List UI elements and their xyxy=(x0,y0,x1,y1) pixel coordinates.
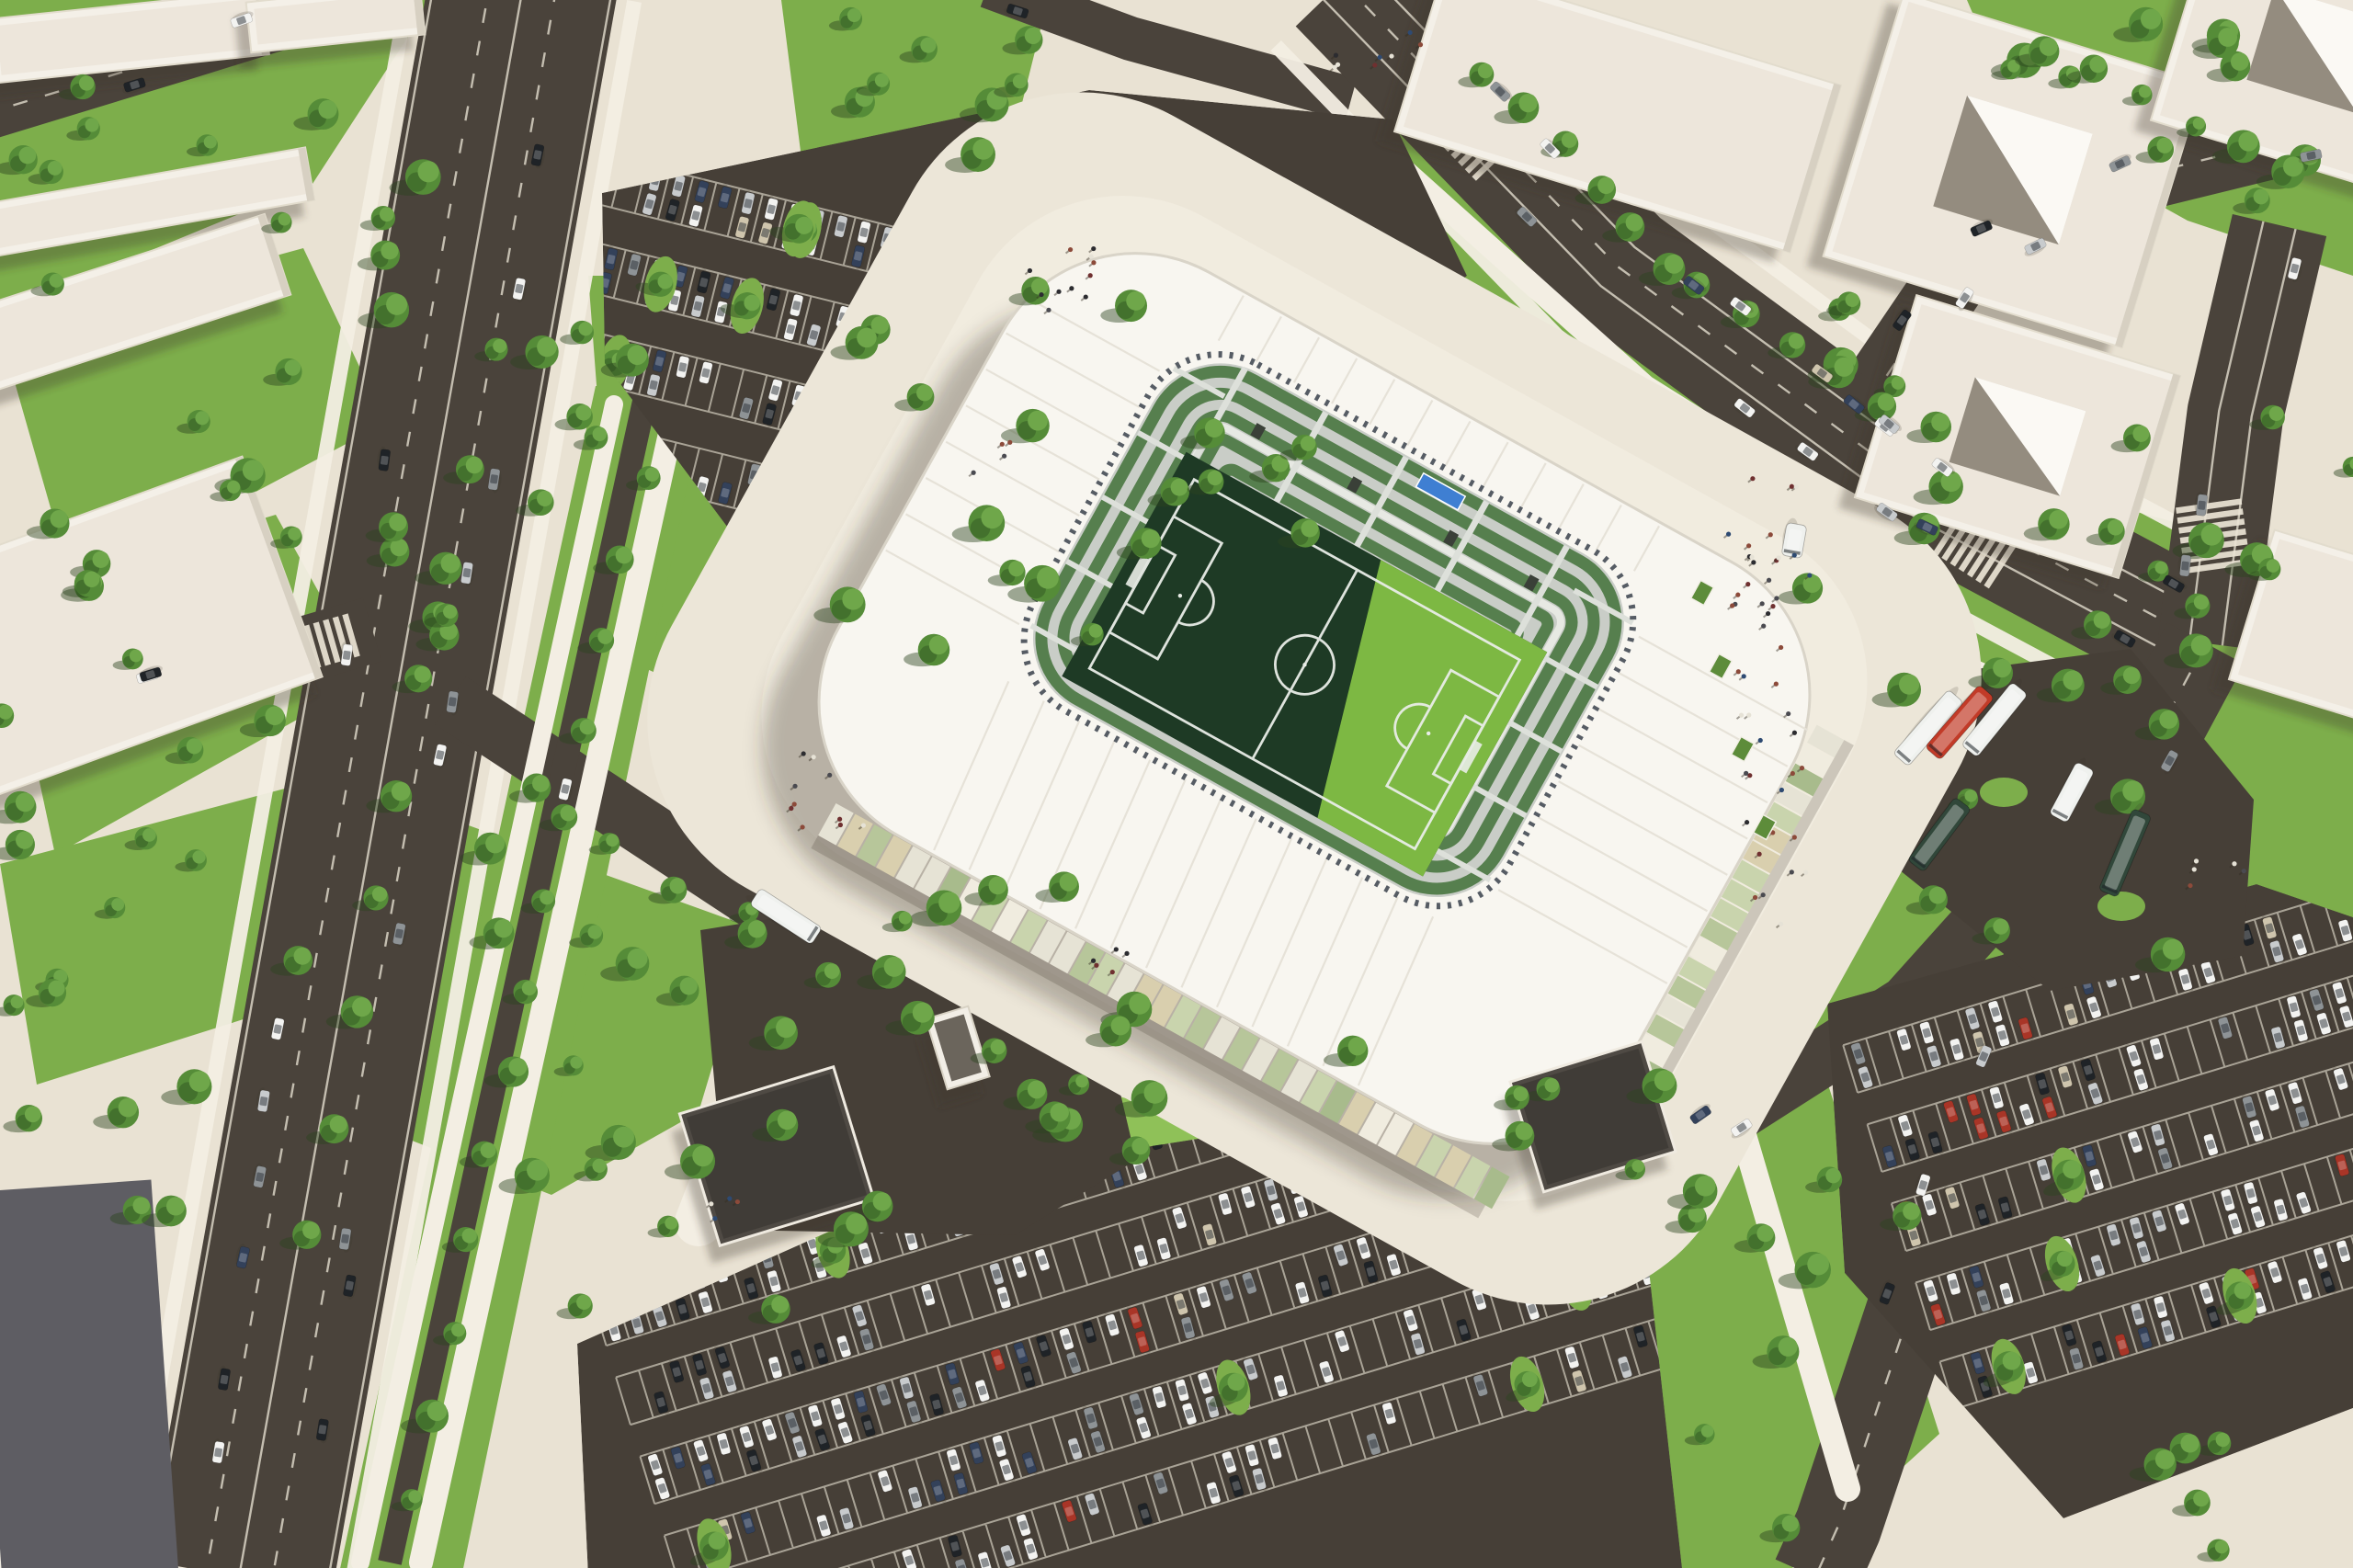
person-dot xyxy=(1114,947,1119,951)
tree-crown-light xyxy=(119,1098,138,1118)
person-dot xyxy=(1790,869,1794,874)
tree-crown-light xyxy=(84,572,99,587)
tree-crown-light xyxy=(776,1017,796,1038)
person-dot xyxy=(1746,543,1751,548)
tree-crown-light xyxy=(485,834,505,853)
tree-crown-light xyxy=(1597,177,1614,194)
tree-crown-light xyxy=(1803,574,1822,593)
person-dot xyxy=(1039,292,1043,297)
tree-crown-light xyxy=(616,547,632,563)
depot-island xyxy=(1980,778,2028,807)
person-dot xyxy=(1730,603,1734,608)
tree-crown-light xyxy=(1695,1176,1716,1197)
tree-crown-light xyxy=(1899,675,1919,695)
tree-crown-light xyxy=(2122,780,2143,801)
tree-crown-light xyxy=(50,274,63,288)
tree-crown-light xyxy=(2094,612,2110,629)
tree-crown-light xyxy=(873,1192,892,1210)
person-dot xyxy=(2188,883,2192,888)
car-cabin xyxy=(341,1233,349,1244)
person-dot xyxy=(1768,532,1773,537)
tree-crown-light xyxy=(330,1116,347,1133)
person-dot xyxy=(1758,738,1763,743)
person-dot xyxy=(1776,555,1780,560)
person-dot xyxy=(709,1201,713,1206)
person-dot xyxy=(1792,731,1797,735)
person-dot xyxy=(1792,552,1797,557)
tree-crown-light xyxy=(991,1040,1006,1054)
tree-crown-light xyxy=(627,345,647,365)
tree-crown-light xyxy=(1089,624,1103,638)
person-dot xyxy=(801,751,806,756)
car-cabin xyxy=(318,1425,326,1435)
tree-crown-light xyxy=(1518,94,1537,112)
tree-crown-light xyxy=(1701,1425,1714,1437)
person-dot xyxy=(1750,476,1755,481)
tree-crown-light xyxy=(1301,436,1316,451)
tree-crown-light xyxy=(1807,1254,1829,1276)
person-dot xyxy=(1084,294,1088,299)
tree-crown-light xyxy=(1931,413,1949,431)
tree-crown-light xyxy=(1348,1037,1367,1055)
tree-crown-light xyxy=(2156,138,2172,153)
tree-crown-light xyxy=(166,1197,185,1215)
tree-crown-light xyxy=(1789,334,1804,349)
person-dot xyxy=(1056,290,1061,294)
tree-crown-light xyxy=(133,1197,151,1214)
tree-crown-light xyxy=(243,460,264,481)
tree-crown-light xyxy=(2191,635,2211,655)
tree-crown-light xyxy=(2269,406,2284,421)
tree-crown-light xyxy=(1037,567,1059,589)
tree-crown-light xyxy=(16,832,33,849)
person-dot xyxy=(838,823,843,827)
tree-crown-light xyxy=(2132,426,2149,442)
tree-crown-light xyxy=(1993,919,2008,935)
tree-crown-light xyxy=(111,898,124,911)
tree-crown-light xyxy=(2194,595,2209,609)
tree-crown-light xyxy=(606,834,619,846)
tree-crown-light xyxy=(189,1071,210,1092)
tree-crown-light xyxy=(1779,1337,1798,1357)
person-dot xyxy=(2192,867,2197,871)
tree-crown-light xyxy=(2193,118,2205,130)
person-dot xyxy=(1088,273,1093,278)
person-dot xyxy=(2194,858,2199,863)
tree-crown-light xyxy=(748,920,766,937)
tree-crown-light xyxy=(588,925,602,938)
person-dot xyxy=(792,784,797,789)
person-dot xyxy=(1761,624,1766,629)
dark-roof-left-building-roof xyxy=(0,1180,179,1568)
person-dot xyxy=(827,773,832,778)
tree-crown-light xyxy=(352,997,371,1017)
tree-crown-light xyxy=(1929,887,1947,904)
tree-crown-light xyxy=(204,135,217,148)
tree-crown-light xyxy=(1031,278,1048,295)
tree-crown-light xyxy=(441,553,460,573)
tree-crown-light xyxy=(1028,411,1048,431)
tree-crown-light xyxy=(527,1160,548,1181)
tree-crown-light xyxy=(1126,291,1145,311)
tree-crown-light xyxy=(597,629,612,643)
car-cabin xyxy=(343,651,351,660)
person-dot xyxy=(837,817,842,822)
tree-crown-light xyxy=(392,782,411,801)
tree-crown-light xyxy=(1846,293,1859,307)
tree-crown-light xyxy=(451,1323,465,1336)
tree-crown-light xyxy=(130,650,142,663)
person-dot xyxy=(1372,62,1377,67)
person-dot xyxy=(1745,820,1749,824)
tree-crown-light xyxy=(1993,659,2011,677)
tree-crown-light xyxy=(1545,1078,1559,1092)
tree-crown-light xyxy=(2063,670,2082,689)
person-dot xyxy=(2232,861,2236,866)
tree-crown-light xyxy=(778,1111,797,1131)
tree-crown-light xyxy=(2254,189,2269,205)
tree-crown-light xyxy=(85,118,98,131)
car-cabin xyxy=(2181,561,2189,570)
tree-crown-light xyxy=(899,912,912,925)
tree-crown-light xyxy=(2139,85,2151,97)
person-dot xyxy=(1745,582,1750,586)
person-dot xyxy=(1735,593,1740,597)
tree-crown-light xyxy=(2159,710,2177,729)
tree-crown-light xyxy=(1514,1086,1529,1101)
person-dot xyxy=(1803,870,1808,875)
person-dot xyxy=(1000,442,1005,447)
person-dot xyxy=(1378,55,1382,60)
tree-crown-light xyxy=(824,963,840,979)
person-dot xyxy=(1334,53,1338,58)
scene-svg: Aerial architectural rendering of a whit… xyxy=(0,0,2353,1568)
car-cabin xyxy=(259,1096,267,1107)
tree-crown-light xyxy=(48,980,64,996)
tree-crown-light xyxy=(989,877,1007,895)
tree-crown-light xyxy=(466,457,483,473)
tree-crown-light xyxy=(1171,479,1188,496)
person-dot xyxy=(1757,852,1762,857)
tree-crown-light xyxy=(288,528,301,540)
tree-crown-light xyxy=(380,207,394,222)
tree-crown-light xyxy=(481,1142,496,1158)
car-cabin xyxy=(2198,501,2206,510)
tree-crown-light xyxy=(1631,1160,1643,1172)
car-cabin xyxy=(449,697,457,707)
tree-crown-light xyxy=(576,1295,591,1310)
tree-crown-light xyxy=(372,887,387,902)
tree-crown-light xyxy=(1478,63,1493,78)
tree-crown-light xyxy=(537,337,557,358)
tree-crown-light xyxy=(847,8,861,22)
person-dot xyxy=(1779,788,1784,792)
tree-crown-light xyxy=(1626,214,1643,232)
person-dot xyxy=(712,1216,717,1221)
tree-crown-light xyxy=(929,635,949,654)
person-dot xyxy=(1408,30,1413,35)
person-dot xyxy=(1002,454,1006,459)
person-dot xyxy=(1790,771,1795,776)
tree-crown-light xyxy=(1208,471,1222,485)
dark-roof-left-building xyxy=(0,1180,180,1568)
car-cabin xyxy=(220,1375,228,1385)
tree-crown-light xyxy=(884,957,904,977)
person-dot xyxy=(800,824,804,829)
depot-island xyxy=(2097,892,2145,921)
tree-crown-light xyxy=(2141,9,2161,29)
tree-crown-light xyxy=(494,919,513,937)
tree-crown-light xyxy=(318,100,336,119)
person-dot xyxy=(1749,554,1754,559)
tree-crown-light xyxy=(265,706,284,725)
person-dot xyxy=(1389,53,1393,58)
person-dot xyxy=(1786,711,1790,716)
tree-crown-light xyxy=(1008,561,1024,576)
person-dot xyxy=(1028,268,1032,273)
person-dot xyxy=(972,471,976,475)
tree-crown-light xyxy=(1825,1168,1841,1184)
person-dot xyxy=(1124,951,1129,956)
person-dot xyxy=(1736,669,1741,674)
tree-crown-light xyxy=(11,995,24,1008)
tree-crown-light xyxy=(2201,524,2222,545)
tree-crown-light xyxy=(2108,519,2123,535)
car-cabin xyxy=(214,1448,222,1458)
tree-crown-light xyxy=(1835,358,1854,377)
person-dot xyxy=(1091,959,1096,963)
tree-crown-light xyxy=(93,551,109,568)
person-dot xyxy=(1770,604,1775,608)
tree-crown-light xyxy=(570,1056,582,1068)
tree-crown-light xyxy=(2155,562,2168,574)
tree-crown-light xyxy=(1075,1074,1088,1087)
tree-crown-light xyxy=(916,385,933,402)
tree-crown-light xyxy=(408,1490,421,1503)
tree-crown-light xyxy=(2231,52,2249,71)
tree-crown-light xyxy=(846,1213,867,1234)
person-dot xyxy=(861,823,866,827)
tree-crown-light xyxy=(645,467,660,482)
tree-crown-light xyxy=(913,1003,933,1023)
person-dot xyxy=(2242,869,2246,873)
tree-crown-light xyxy=(1131,1138,1148,1154)
tree-crown-light xyxy=(2267,559,2280,573)
person-dot xyxy=(792,801,797,806)
person-dot xyxy=(1794,484,1799,489)
tree-crown-light xyxy=(670,878,686,893)
person-dot xyxy=(1046,308,1051,312)
tree-crown-light xyxy=(48,161,63,176)
tree-crown-light xyxy=(1892,377,1904,390)
tree-crown-light xyxy=(25,1106,41,1122)
person-dot xyxy=(1069,286,1074,290)
person-dot xyxy=(1779,645,1783,650)
tree-crown-light xyxy=(578,322,592,335)
tree-crown-light xyxy=(1111,1017,1131,1036)
tree-crown-light xyxy=(2089,56,2106,73)
tree-crown-light xyxy=(1903,1203,1920,1221)
tree-crown-light xyxy=(192,850,205,863)
tree-crown-light xyxy=(2216,1433,2230,1447)
tree-crown-light xyxy=(665,1217,677,1230)
tree-crown-light xyxy=(1782,1516,1799,1532)
tree-crown-light xyxy=(1013,74,1027,88)
person-dot xyxy=(1418,42,1423,47)
aerial-render: Aerial architectural rendering of a whit… xyxy=(0,0,2353,1568)
tree-crown-light xyxy=(1301,520,1318,538)
tree-crown-light xyxy=(1654,1070,1676,1091)
tree-crown-light xyxy=(1665,255,1684,274)
person-dot xyxy=(1774,596,1779,600)
tree-crown-light xyxy=(427,1401,448,1421)
car-cabin xyxy=(381,456,389,465)
tree-crown-light xyxy=(2193,1491,2209,1506)
tree-crown-light xyxy=(493,339,506,353)
tree-crown-light xyxy=(1562,132,1577,148)
person-dot xyxy=(1007,440,1012,445)
tree-crown-light xyxy=(1756,1225,1774,1243)
person-dot xyxy=(1333,65,1337,70)
tree-crown-light xyxy=(771,1296,789,1313)
person-dot xyxy=(1753,895,1757,900)
person-dot xyxy=(1091,260,1096,265)
tree-crown-light xyxy=(1965,790,1978,802)
tree-crown-light xyxy=(302,1221,320,1239)
tree-crown-light xyxy=(2049,510,2068,529)
tree-crown-light xyxy=(1144,1082,1166,1104)
tree-crown-light xyxy=(386,294,407,315)
tree-crown-light xyxy=(2163,939,2183,960)
tree-crown-light xyxy=(381,242,398,259)
car-cabin xyxy=(490,474,498,484)
tree-crown-light xyxy=(51,510,68,528)
person-dot xyxy=(812,755,816,759)
person-dot xyxy=(1760,601,1765,606)
tree-crown-light xyxy=(2238,131,2258,152)
tree-crown-light xyxy=(2040,38,2058,56)
person-dot xyxy=(1726,532,1731,537)
person-dot xyxy=(1746,712,1751,717)
tree-crown-light xyxy=(508,1058,527,1076)
tree-crown-light xyxy=(79,75,94,90)
tree-crown-light xyxy=(462,1228,477,1243)
tree-crown-light xyxy=(18,147,36,165)
tree-crown-light xyxy=(593,427,607,441)
tree-crown-light xyxy=(415,666,431,683)
tree-crown-light xyxy=(1516,1122,1533,1140)
person-dot xyxy=(1766,611,1770,616)
tree-crown-light xyxy=(1025,28,1041,44)
tree-crown-light xyxy=(972,139,994,160)
tree-crown-light xyxy=(142,828,156,842)
tree-crown-light xyxy=(561,805,576,821)
person-dot xyxy=(1767,578,1771,583)
tree-crown-light xyxy=(875,74,889,87)
tree-crown-light xyxy=(285,359,301,376)
tree-crown-light xyxy=(540,891,554,905)
tree-crown-light xyxy=(2155,1449,2175,1469)
person-dot xyxy=(789,806,793,811)
tree-crown-light xyxy=(389,514,406,531)
person-dot xyxy=(1761,892,1766,897)
tree-crown-light xyxy=(1060,873,1078,892)
tree-crown-light xyxy=(575,404,591,420)
tree-crown-light xyxy=(2218,28,2237,47)
person-dot xyxy=(1068,247,1073,252)
tree-crown-light xyxy=(1129,994,1150,1015)
tree-crown-light xyxy=(628,949,648,969)
tree-crown-light xyxy=(1028,1080,1046,1098)
person-dot xyxy=(735,1199,740,1204)
tree-crown-light xyxy=(2215,1540,2229,1554)
tree-crown-light xyxy=(613,1127,634,1148)
person-dot xyxy=(1742,674,1746,678)
tree-crown-light xyxy=(294,948,312,965)
person-dot xyxy=(1807,573,1812,577)
tree-crown-light xyxy=(938,892,960,913)
person-dot xyxy=(1779,922,1783,926)
tree-crown-light xyxy=(2123,667,2140,684)
tree-crown-light xyxy=(580,719,596,734)
person-dot xyxy=(1110,970,1115,974)
tree-crown-light xyxy=(16,792,35,812)
tree-crown-light xyxy=(227,481,240,494)
tree-crown-light xyxy=(680,977,698,994)
tree-crown-light xyxy=(920,38,936,53)
tree-crown-light xyxy=(278,213,291,226)
tree-crown-light xyxy=(187,738,202,754)
tree-crown-light xyxy=(443,605,457,619)
tree-crown-light xyxy=(2180,1434,2199,1452)
person-dot xyxy=(1094,963,1098,968)
person-dot xyxy=(1792,835,1797,839)
tree-crown-light xyxy=(195,411,209,425)
person-dot xyxy=(1751,560,1756,564)
car-cabin xyxy=(462,568,471,578)
person-dot xyxy=(1739,712,1744,717)
tree-crown-light xyxy=(1878,393,1895,411)
tree-crown-light xyxy=(532,775,550,792)
tree-crown-light xyxy=(1142,529,1160,548)
person-dot xyxy=(727,1196,732,1200)
tree-crown-light xyxy=(417,161,438,182)
tree-crown-light xyxy=(1205,419,1223,437)
person-dot xyxy=(1089,254,1094,258)
person-dot xyxy=(1800,766,1804,770)
tree-crown-light xyxy=(857,328,876,347)
tree-crown-light xyxy=(981,506,1003,528)
tree-crown-light xyxy=(692,1145,713,1166)
person-dot xyxy=(1774,682,1779,687)
tree-crown-light xyxy=(592,1159,606,1173)
person-dot xyxy=(1091,246,1096,251)
tree-crown-light xyxy=(522,981,537,995)
tree-crown-light xyxy=(537,491,552,506)
person-dot xyxy=(1744,771,1748,776)
tree-crown-light xyxy=(1051,1103,1069,1121)
tree-crown-light xyxy=(842,588,863,609)
